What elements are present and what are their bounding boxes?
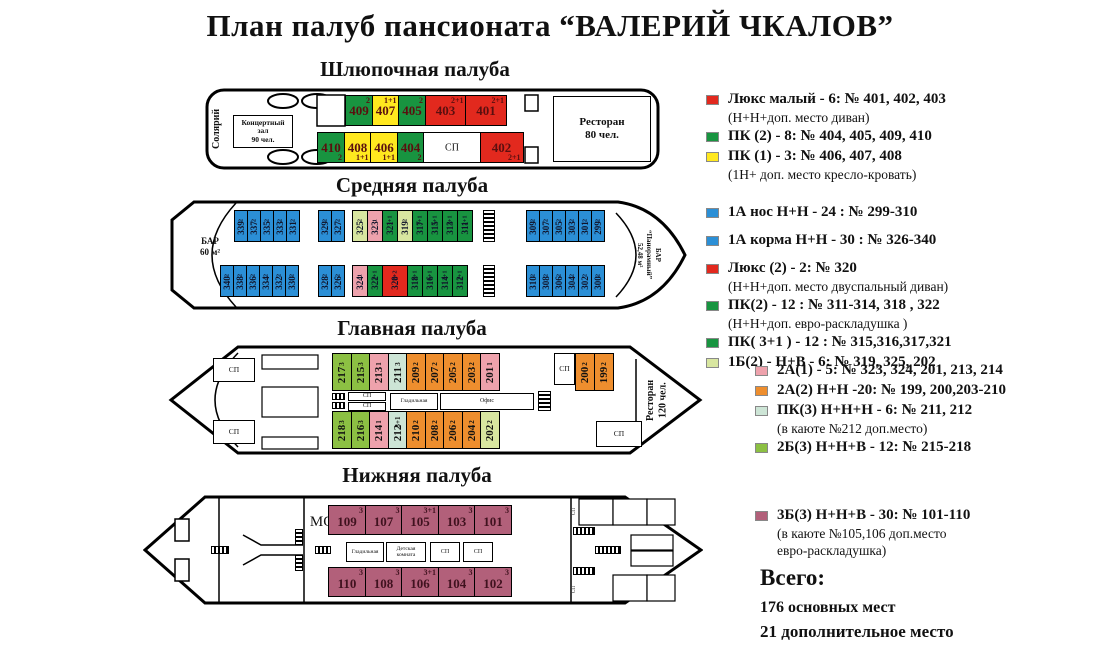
middle-bottom-mid-cabins: 32413222+13202+23182+13163+13142+13122+1 <box>352 265 468 297</box>
cabin-capacity: 2 <box>402 219 409 222</box>
sp-room: СП <box>348 392 386 401</box>
cabin-number: 213 <box>373 366 385 383</box>
cabin-number: 205 <box>447 366 459 383</box>
legend-swatch <box>706 152 719 162</box>
legend-item: ПК( 3+1 ) - 12 : № 315,316,317,321 <box>706 333 1036 352</box>
cabin-number: 107 <box>374 514 394 530</box>
cabin-capacity: 2+1 <box>447 215 454 225</box>
legend-item: 2Б(3) Н+Н+В - 12: № 215-218 <box>755 438 1085 457</box>
cabin-number: 299 <box>593 221 603 235</box>
room-sp: СП <box>423 132 481 163</box>
stairs-icon <box>332 393 345 400</box>
cabin-capacity: 1 <box>372 219 379 222</box>
deck-middle: БАР 60 м² 33923372335233323312 32923272 … <box>168 200 690 310</box>
middle-top-right-cabins: 309230723052303230122992 <box>526 210 605 242</box>
legend-text-block: ПК(3) Н+Н+Н - 6: № 211, 212(в каюте №212… <box>777 401 972 437</box>
cabin-number: 303 <box>567 221 577 235</box>
cabin-number: 327 <box>333 221 343 235</box>
cabin-capacity: 2 <box>251 219 258 222</box>
cabin-102: 1023 <box>474 567 512 597</box>
cabin-number: 105 <box>410 514 430 530</box>
cabin-capacity: 2 <box>322 274 329 277</box>
kids-room: Детская комната <box>386 542 426 562</box>
cabin-number: 307 <box>541 221 551 235</box>
cabin-capacity: 3 <box>505 568 509 577</box>
cabin-335: 3352 <box>260 210 274 242</box>
stairs-icon <box>211 546 229 554</box>
sp-room: СП <box>213 358 255 382</box>
legend-text-block: Люкс малый - 6: № 401, 402, 403(Н+Н+доп.… <box>728 90 946 126</box>
main-bottom-cabins: 2183216321412123+121022082206220422022 <box>332 411 500 449</box>
cabin-326: 3262 <box>331 265 345 297</box>
office-room: Офис <box>440 393 534 410</box>
totals-main-seats: 176 основных мест <box>760 599 954 617</box>
totals-block: Всего: 176 основных мест 21 дополнительн… <box>760 565 954 642</box>
cabin-number: 202 <box>484 424 496 441</box>
cabin-103: 1033 <box>438 505 476 535</box>
cabin-number: 203 <box>466 366 478 383</box>
cabin-capacity: 2 <box>530 219 537 222</box>
cabin-capacity: 2+1 <box>462 215 469 225</box>
cabin-number: 209 <box>410 366 422 383</box>
cabin-capacity: 2 <box>543 219 550 222</box>
cabin-338: 3382 <box>233 265 247 297</box>
legend-swatch <box>706 95 719 105</box>
cabin-capacity: 1+1 <box>382 153 395 162</box>
cabin-capacity: 3+1 <box>423 506 436 515</box>
cabin-207: 2072 <box>425 353 445 391</box>
legend-text-block: ПК(2) - 12 : № 311-314, 318 , 322(Н+Н+до… <box>728 296 940 332</box>
legend-text-block: 2А(1) - 5: № 323, 324, 201, 213, 214 <box>777 361 1003 380</box>
cabin-number: 199 <box>598 366 610 383</box>
legend-item: 1А корма Н+Н - 30 : № 326-340 <box>706 231 1036 250</box>
cabin-capacity: 2 <box>582 219 589 222</box>
cabin-217: 2173 <box>332 353 352 391</box>
cabin-number: 207 <box>429 366 441 383</box>
cabin-number: 335 <box>262 221 272 235</box>
middle-top-left2-cabins: 32923272 <box>318 210 345 242</box>
cabin-406: 4061+1 <box>370 132 398 163</box>
cabin-capacity: 1 <box>357 274 364 277</box>
cabin-capacity: 1 <box>375 362 383 366</box>
cabin-capacity: 3+1 <box>423 568 436 577</box>
cabin-capacity: 2 <box>237 274 244 277</box>
cabin-number: 324 <box>355 276 365 290</box>
cabin-number: 206 <box>447 424 459 441</box>
cabin-331: 3312 <box>286 210 300 242</box>
legend-text: ПК( 3+1 ) - 12 : № 315,316,317,321 <box>728 333 952 352</box>
legend-item: 3Б(3) Н+Н+В - 30: № 101-110(в каюте №105… <box>755 506 1085 559</box>
cabin-number: 339 <box>236 221 246 235</box>
cabin-capacity: 2 <box>238 219 245 222</box>
cabin-capacity: 2 <box>449 420 457 424</box>
cabin-302: 3022 <box>578 265 592 297</box>
legend-text-block: ПК (2) - 8: № 404, 405, 409, 410 <box>728 127 932 146</box>
sp-room: СП <box>463 542 493 562</box>
cabin-number: 330 <box>287 276 297 290</box>
cabin-capacity: 2 <box>250 274 257 277</box>
cabin-capacity: 2 <box>595 219 602 222</box>
stairs-icon <box>573 527 595 535</box>
legend-item: ПК(2) - 12 : № 311-314, 318 , 322(Н+Н+до… <box>706 296 1036 332</box>
deck-title-main: Главная палуба <box>262 316 562 341</box>
cabin-106: 1063+1 <box>401 567 439 597</box>
sp-label-vertical: СП <box>572 579 580 601</box>
cabin-number: СП <box>445 142 459 153</box>
middle-bottom-left-cabins: 340233823362334233223302 <box>220 265 299 297</box>
cabin-capacity: 2+1 <box>451 96 464 105</box>
cabin-313: 3132+1 <box>442 210 458 242</box>
cabin-317: 3173+1 <box>412 210 428 242</box>
cabin-203: 2032 <box>462 353 482 391</box>
legend-swatch <box>706 338 719 348</box>
legend-swatch <box>706 132 719 142</box>
legend-text-block: 3Б(3) Н+Н+В - 30: № 101-110(в каюте №105… <box>777 506 970 559</box>
cabin-number: 101 <box>483 514 503 530</box>
cabin-capacity: 3 <box>505 506 509 515</box>
cabin-capacity: 3+1 <box>387 215 394 225</box>
cabin-314: 3142+1 <box>437 265 453 297</box>
cabin-213: 2131 <box>369 353 389 391</box>
legend-item: 1А нос Н+Н - 24 : № 299-310 <box>706 203 1036 222</box>
sp-room: СП <box>554 353 575 385</box>
bar-panoramic-label: БАР “Панорамный” 52,48 м² <box>636 216 662 294</box>
cabin-108: 1083 <box>365 567 403 597</box>
boat-deck-top-cabins: 40924071+140524032+14012+1 <box>345 95 507 126</box>
cabin-capacity: 3+1 <box>394 417 402 428</box>
cabin-capacity: 2 <box>335 274 342 277</box>
cabin-number: 300 <box>593 276 603 290</box>
cabin-number: 326 <box>333 276 343 290</box>
legend-text-block: Люкс (2) - 2: № 320(Н+Н+доп. место двусп… <box>728 259 948 295</box>
cabin-capacity: 2 <box>543 274 550 277</box>
middle-bottom-right-cabins: 310230823062304230223002 <box>526 265 605 297</box>
legend-note: (1Н+ доп. место кресло-кровать) <box>728 166 916 183</box>
bar-60-label: БАР 60 м² <box>186 236 234 258</box>
legend-swatch <box>755 406 768 416</box>
cabin-capacity: 2 <box>556 274 563 277</box>
cabin-318: 3182+1 <box>407 265 423 297</box>
cabin-capacity: 2 <box>224 274 231 277</box>
cabin-capacity: 2 <box>468 420 476 424</box>
cabin-307: 3072 <box>539 210 553 242</box>
cabin-number: 200 <box>579 366 591 383</box>
cabin-number: 323 <box>370 221 380 235</box>
legend-group-boat-deck: Люкс малый - 6: № 401, 402, 403(Н+Н+доп.… <box>706 90 1036 184</box>
stairs-icon <box>595 546 621 554</box>
sp-room: СП <box>596 421 642 447</box>
stairs-icon <box>315 546 331 554</box>
cabin-capacity: 2+1 <box>372 270 379 280</box>
legend-swatch <box>755 366 768 376</box>
legend-item: Люкс (2) - 2: № 320(Н+Н+доп. место двусп… <box>706 259 1036 295</box>
cabin-211: 2113 <box>388 353 408 391</box>
cabin-capacity: 3 <box>396 506 400 515</box>
deck-title-boat: Шлюпочная палуба <box>265 57 565 82</box>
cabin-capacity: 2+1 <box>491 96 504 105</box>
restaurant-80-room: Ресторан 80 чел. <box>553 96 651 162</box>
legend-item: ПК(3) Н+Н+Н - 6: № 211, 212(в каюте №212… <box>755 401 1085 437</box>
cabin-number: 215 <box>355 366 367 383</box>
cabin-capacity: 2 <box>264 219 271 222</box>
cabin-capacity: 2 <box>449 362 457 366</box>
main-top-cabins: 217321532131211320922072205220322011 <box>332 353 500 391</box>
cabin-capacity: 2 <box>338 153 342 162</box>
stairs-icon <box>573 567 595 575</box>
stairs-icon <box>483 265 495 297</box>
ironing-room: Гладильная <box>346 542 384 562</box>
cabin-204: 2042 <box>462 411 482 449</box>
legend-item: ПК (2) - 8: № 404, 405, 409, 410 <box>706 127 1036 146</box>
cabin-202: 2022 <box>480 411 500 449</box>
cabin-number: 216 <box>355 424 367 441</box>
legend-swatch <box>706 301 719 311</box>
cabin-319: 3192 <box>397 210 413 242</box>
cabin-208: 2082 <box>425 411 445 449</box>
legend-text: Люкс (2) - 2: № 320 <box>728 259 948 278</box>
cabin-328: 3282 <box>318 265 332 297</box>
cabin-218: 2183 <box>332 411 352 449</box>
cabin-capacity: 3 <box>357 362 365 366</box>
deck-plan-page: { "title": "План палуб пансионата “ВАЛЕР… <box>0 0 1100 650</box>
legend-group-middle-deck: 1А нос Н+Н - 24 : № 299-3101А корма Н+Н … <box>706 203 1036 373</box>
cabin-capacity: 3+1 <box>417 215 424 225</box>
restaurant-120-label: Ресторан 120 чел. <box>645 360 675 440</box>
cabin-number: 110 <box>338 576 357 592</box>
legend-text: 1А нос Н+Н - 24 : № 299-310 <box>728 203 917 222</box>
cabin-316: 3163+1 <box>422 265 438 297</box>
cabin-number: 210 <box>410 424 422 441</box>
cabin-number: 328 <box>320 276 330 290</box>
legend-text: 2Б(3) Н+Н+В - 12: № 215-218 <box>777 438 971 457</box>
cabin-209: 2092 <box>406 353 426 391</box>
cabin-340: 3402 <box>220 265 234 297</box>
cabin-capacity: 3 <box>396 568 400 577</box>
cabin-capacity: 3 <box>469 568 473 577</box>
cabin-306: 3062 <box>552 265 566 297</box>
cabin-capacity: 2+1 <box>457 270 464 280</box>
cabin-216: 2163 <box>351 411 371 449</box>
cabin-capacity: 2+1 <box>442 270 449 280</box>
cabin-number: 329 <box>320 221 330 235</box>
cabin-number: 336 <box>248 276 258 290</box>
cabin-200: 2002 <box>575 353 595 391</box>
legend-text: ПК(2) - 12 : № 311-314, 318 , 322 <box>728 296 940 315</box>
legend-text-block: 2Б(3) Н+Н+В - 12: № 215-218 <box>777 438 971 457</box>
cabin-capacity: 2 <box>569 219 576 222</box>
legend-note: (в каюте №212 доп.место) <box>777 420 972 437</box>
middle-top-mid-cabins: 325232313213+131923173+13153+13132+13112… <box>352 210 473 242</box>
cabin-315: 3153+1 <box>427 210 443 242</box>
cabin-311: 3112+1 <box>457 210 473 242</box>
cabin-410: 4102 <box>317 132 345 163</box>
cabin-capacity: 2 <box>582 274 589 277</box>
deck-title-middle: Средняя палуба <box>262 173 562 198</box>
totals-heading: Всего: <box>760 565 954 591</box>
sp-label-vertical: СП <box>572 501 580 523</box>
cabin-capacity: 2 <box>595 274 602 277</box>
legend-swatch <box>706 236 719 246</box>
stairs-icon <box>295 529 303 545</box>
cabin-104: 1043 <box>438 567 476 597</box>
cabin-capacity: 2 <box>569 274 576 277</box>
cabin-capacity: 2 <box>486 420 494 424</box>
cabin-number: 301 <box>580 221 590 235</box>
cabin-number: 302 <box>580 276 590 290</box>
cabin-number: 109 <box>337 514 357 530</box>
cabin-405: 4052 <box>398 95 426 126</box>
cabin-capacity: 2 <box>366 96 370 105</box>
cabin-capacity: 2+2 <box>392 270 399 280</box>
cabin-407: 4071+1 <box>372 95 400 126</box>
cabin-401: 4012+1 <box>465 95 507 126</box>
cabin-323: 3231 <box>367 210 383 242</box>
cabin-101: 1013 <box>474 505 512 535</box>
cabin-215: 2153 <box>351 353 371 391</box>
cabin-404: 4042 <box>397 132 425 163</box>
cabin-capacity: 1 <box>375 420 383 424</box>
deck-title-lower: Нижняя палуба <box>267 463 567 488</box>
cabin-301: 3012 <box>578 210 592 242</box>
cabin-337: 3372 <box>247 210 261 242</box>
cabin-321: 3213+1 <box>382 210 398 242</box>
cabin-capacity: 3+1 <box>427 270 434 280</box>
cabin-number: 208 <box>429 424 441 441</box>
legend-text-block: 1А нос Н+Н - 24 : № 299-310 <box>728 203 917 222</box>
legend-note: (Н+Н+доп. евро-раскладушка ) <box>728 315 940 332</box>
legend-text: 2А(1) - 5: № 323, 324, 201, 213, 214 <box>777 361 1003 380</box>
legend-group-main-deck: 2А(1) - 5: № 323, 324, 201, 213, 2142А(2… <box>755 361 1085 458</box>
legend-text-block: ПК (1) - 3: № 406, 407, 408(1Н+ доп. мес… <box>728 147 916 183</box>
deck-lower: МО 109310731053+110331013 Гладильная Дет… <box>143 495 703 607</box>
cabin-capacity: 1+1 <box>384 96 397 105</box>
cabin-capacity: 3+1 <box>432 215 439 225</box>
cabin-322: 3222+1 <box>367 265 383 297</box>
cabin-number: 218 <box>336 424 348 441</box>
page-title: План палуб пансионата “ВАЛЕРИЙ ЧКАЛОВ” <box>0 8 1100 44</box>
cabin-number: 310 <box>528 276 538 290</box>
cabin-capacity: 3 <box>357 420 365 424</box>
cabin-capacity: 2 <box>419 96 423 105</box>
cabin-number: 331 <box>288 221 298 235</box>
cabin-capacity: 2 <box>556 219 563 222</box>
cabin-capacity: 2+1 <box>508 153 521 162</box>
legend-text: ПК (2) - 8: № 404, 405, 409, 410 <box>728 127 932 146</box>
cabin-number: 103 <box>447 514 467 530</box>
sp-room: СП <box>430 542 460 562</box>
cabin-number: 106 <box>410 576 430 592</box>
cabin-299: 2992 <box>591 210 605 242</box>
cabin-number: 334 <box>261 276 271 290</box>
legend-swatch <box>706 358 719 368</box>
legend-swatch <box>755 511 768 521</box>
cabin-336: 3362 <box>246 265 260 297</box>
cabin-309: 3092 <box>526 210 540 242</box>
legend-text: 2А(2) Н+Н -20: № 199, 200,203-210 <box>777 381 1006 400</box>
legend-item: Люкс малый - 6: № 401, 402, 403(Н+Н+доп.… <box>706 90 1036 126</box>
cabin-329: 3292 <box>318 210 332 242</box>
cabin-number: 333 <box>275 221 285 235</box>
cabin-number: 340 <box>222 276 232 290</box>
concert-hall-room: Концертный зал 90 чел. <box>233 115 293 148</box>
cabin-312: 3122+1 <box>452 265 468 297</box>
ironing-room: Гладильная <box>390 393 438 410</box>
cabin-number: 309 <box>528 221 538 235</box>
cabin-333: 3332 <box>273 210 287 242</box>
cabin-capacity: 2 <box>290 219 297 222</box>
lower-bottom-cabins: 110310831063+110431023 <box>328 567 512 597</box>
cabin-number: 325 <box>355 221 365 235</box>
cabin-capacity: 2 <box>277 219 284 222</box>
cabin-107: 1073 <box>365 505 403 535</box>
legend-note: (Н+Н+доп. место диван) <box>728 109 946 126</box>
cabin-number: 204 <box>466 424 478 441</box>
cabin-capacity: 2+1 <box>412 270 419 280</box>
cabin-332: 3322 <box>272 265 286 297</box>
main-right-cabins: 20021992 <box>575 353 614 391</box>
cabin-320: 3202+2 <box>382 265 408 297</box>
cabin-capacity: 2 <box>335 219 342 222</box>
totals-extra-seats: 21 дополнительное место <box>760 622 954 642</box>
cabin-capacity: 2 <box>418 153 422 162</box>
stairs-icon <box>483 210 495 242</box>
legend-note: (в каюте №105,106 доп.место <box>777 525 970 542</box>
cabin-capacity: 2 <box>412 420 420 424</box>
cabin-number: 338 <box>235 276 245 290</box>
cabin-number: 306 <box>554 276 564 290</box>
cabin-number: 319 <box>400 221 410 235</box>
cabin-capacity: 2 <box>357 219 364 222</box>
legend-item: 2А(2) Н+Н -20: № 199, 200,203-210 <box>755 381 1085 400</box>
legend-text: ПК(3) Н+Н+Н - 6: № 211, 212 <box>777 401 972 420</box>
cabin-305: 3052 <box>552 210 566 242</box>
cabin-number: 217 <box>336 366 348 383</box>
legend-swatch <box>706 208 719 218</box>
legend-text-block: 1А корма Н+Н - 30 : № 326-340 <box>728 231 936 250</box>
cabin-number: 108 <box>374 576 394 592</box>
cabin-number: 214 <box>373 424 385 441</box>
cabin-number: 337 <box>249 221 259 235</box>
cabin-330: 3302 <box>285 265 299 297</box>
legend-text: ПК (1) - 3: № 406, 407, 408 <box>728 147 916 166</box>
cabin-number: 308 <box>541 276 551 290</box>
cabin-capacity: 2 <box>322 219 329 222</box>
sp-room: СП <box>348 402 386 411</box>
solarium-label: Солярий <box>211 96 226 162</box>
legend-item: ПК (1) - 3: № 406, 407, 408(1Н+ доп. мес… <box>706 147 1036 183</box>
cabin-304: 3042 <box>565 265 579 297</box>
cabin-201: 2011 <box>480 353 500 391</box>
deck-main: СП СП 2173215321312113209220722052203220… <box>168 345 703 455</box>
cabin-325: 3252 <box>352 210 368 242</box>
cabin-number: 201 <box>484 366 496 383</box>
legend-item: 2А(1) - 5: № 323, 324, 201, 213, 214 <box>755 361 1085 380</box>
cabin-402: 4022+1 <box>480 132 524 163</box>
cabin-403: 4032+1 <box>425 95 467 126</box>
cabin-number: 104 <box>447 576 467 592</box>
cabin-334: 3342 <box>259 265 273 297</box>
cabin-number: 332 <box>274 276 284 290</box>
cabin-300: 3002 <box>591 265 605 297</box>
cabin-number: 305 <box>554 221 564 235</box>
stairs-icon <box>332 402 345 409</box>
legend-text: 1А корма Н+Н - 30 : № 326-340 <box>728 231 936 250</box>
sp-room: СП <box>213 420 255 444</box>
cabin-capacity: 2 <box>431 362 439 366</box>
cabin-capacity: 3 <box>469 506 473 515</box>
cabin-capacity: 1+1 <box>356 153 369 162</box>
cabin-214: 2141 <box>369 411 389 449</box>
